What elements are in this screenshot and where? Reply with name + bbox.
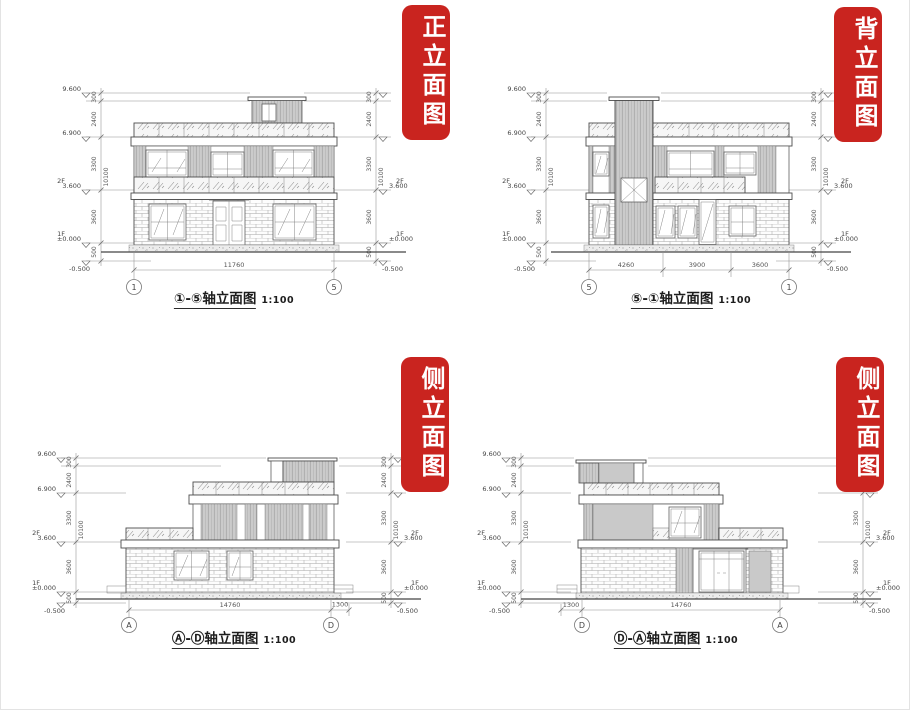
elev-label: ±0.000 xyxy=(876,584,900,592)
elev-label: ±0.000 xyxy=(404,584,428,592)
panel-front: 9.600 6.900 2F 3.600 1F ±0.000 -0.500 30… xyxy=(57,85,413,295)
vdim-total: 10100 xyxy=(865,520,872,539)
caption-back: ⑤-①轴立面图1:100 xyxy=(631,287,751,307)
elev-label: ±0.000 xyxy=(502,235,526,243)
vdim: 500 xyxy=(381,592,388,604)
hdim: 3600 xyxy=(752,261,769,269)
hdim: 14760 xyxy=(671,601,692,609)
back-left-dim-column: 9.600 6.900 2F 3.600 1F ±0.000 -0.500 30… xyxy=(502,85,596,273)
elev-label: -0.500 xyxy=(827,265,848,273)
elev-label: ±0.000 xyxy=(32,584,56,592)
back-building xyxy=(531,93,851,252)
vdim: 3600 xyxy=(536,209,543,224)
elev-label: 9.600 xyxy=(507,85,526,93)
vdim: 3300 xyxy=(811,156,818,171)
elev-label: 3.600 xyxy=(62,182,81,190)
vdim: 3600 xyxy=(366,209,373,224)
vdim: 3600 xyxy=(853,559,860,574)
caption-side-ad-scale: 1:100 xyxy=(263,635,296,646)
vdim: 500 xyxy=(91,246,98,258)
elev-label: ±0.000 xyxy=(834,235,858,243)
elev-label: ±0.000 xyxy=(477,584,501,592)
elev-label: -0.500 xyxy=(397,607,418,615)
hdim: 4260 xyxy=(618,261,635,269)
vdim: 2400 xyxy=(511,472,518,487)
vdim: 3600 xyxy=(91,209,98,224)
sidead-building xyxy=(61,458,421,599)
elev-label: ±0.000 xyxy=(57,235,81,243)
vdim-total: 10100 xyxy=(78,520,85,539)
vdim-total: 10100 xyxy=(523,520,530,539)
caption-side-ad: Ⓐ-Ⓓ轴立面图1:100 xyxy=(172,627,296,647)
vdim: 3300 xyxy=(366,156,373,171)
vdim: 3600 xyxy=(381,559,388,574)
vdim: 2400 xyxy=(811,111,818,126)
elev-label: -0.500 xyxy=(382,265,403,273)
vdim: 3300 xyxy=(853,510,860,525)
elev-label: 6.900 xyxy=(482,485,501,493)
hdim: 3900 xyxy=(689,261,706,269)
elev-label: ±0.000 xyxy=(389,235,413,243)
caption-side-ad-title: Ⓐ-Ⓓ轴立面图 xyxy=(172,631,259,649)
vdim-total: 10100 xyxy=(103,167,110,186)
banner-back-elevation: 背立面图 xyxy=(834,7,882,142)
axis-bubble: D xyxy=(328,621,334,630)
axis-bubble: 1 xyxy=(786,283,791,292)
vdim: 500 xyxy=(853,592,860,604)
elev-label: 6.900 xyxy=(62,129,81,137)
vdim: 3300 xyxy=(91,156,98,171)
vdim: 3300 xyxy=(511,510,518,525)
vdim: 3600 xyxy=(66,559,73,574)
panel-side-ad: 9.600 6.900 2F 3.600 1F ±0.000 -0.500 30… xyxy=(32,450,428,633)
elev-label: 6.900 xyxy=(507,129,526,137)
elev-label: 6.900 xyxy=(37,485,56,493)
axis-bubble: 5 xyxy=(331,283,336,292)
vdim: 2400 xyxy=(366,111,373,126)
elev-label: -0.500 xyxy=(69,265,90,273)
caption-front-title: ①-⑤轴立面图 xyxy=(174,291,256,309)
elev-label: 3.600 xyxy=(507,182,526,190)
axis-bubble: 1 xyxy=(131,283,136,292)
elev-label: -0.500 xyxy=(44,607,65,615)
panel-back: 9.600 6.900 2F 3.600 1F ±0.000 -0.500 30… xyxy=(502,85,858,295)
hdim: 11760 xyxy=(224,261,245,269)
front-building xyxy=(86,93,406,252)
elev-label: 3.600 xyxy=(876,534,895,542)
vdim-total: 10100 xyxy=(393,520,400,539)
banner-front-elevation: 正立面图 xyxy=(402,5,450,140)
axis-bubble: D xyxy=(579,621,585,630)
elevation-sheet: 9.600 6.900 2F 3.600 1F ±0.000 -0.500 30… xyxy=(0,0,910,710)
elev-label: -0.500 xyxy=(514,265,535,273)
vdim: 3600 xyxy=(811,209,818,224)
vdim: 500 xyxy=(536,246,543,258)
elev-label: 3.600 xyxy=(37,534,56,542)
elev-label: 3.600 xyxy=(482,534,501,542)
caption-side-da: Ⓓ-Ⓐ轴立面图1:100 xyxy=(614,627,738,647)
vdim: 2400 xyxy=(381,472,388,487)
vdim-total: 10100 xyxy=(548,167,555,186)
vdim: 500 xyxy=(511,592,518,604)
elev-label: -0.500 xyxy=(869,607,890,615)
caption-back-scale: 1:100 xyxy=(718,295,751,306)
vdim: 3300 xyxy=(66,510,73,525)
vdim: 3600 xyxy=(511,559,518,574)
vdim: 2400 xyxy=(91,111,98,126)
axis-bubble: A xyxy=(777,621,783,630)
sidead-left-dim-column: 9.600 6.900 2F 3.600 1F ±0.000 -0.500 30… xyxy=(32,450,126,615)
caption-front: ①-⑤轴立面图1:100 xyxy=(174,287,294,307)
vdim: 3300 xyxy=(536,156,543,171)
vdim: 2400 xyxy=(536,111,543,126)
hdim: 1300 xyxy=(563,601,580,609)
elev-label: -0.500 xyxy=(489,607,510,615)
vdim-total: 10100 xyxy=(378,167,385,186)
sideda-building xyxy=(506,458,881,599)
front-right-dim-column: 2F 3.600 1F ±0.000 -0.500 300 2400 3300 … xyxy=(331,88,413,273)
hdim: 14760 xyxy=(220,601,241,609)
axis-bubble: A xyxy=(126,621,132,630)
caption-side-da-title: Ⓓ-Ⓐ轴立面图 xyxy=(614,631,701,649)
vdim-total: 10100 xyxy=(823,167,830,186)
caption-side-da-scale: 1:100 xyxy=(705,635,738,646)
vdim: 500 xyxy=(66,592,73,604)
caption-back-title: ⑤-①轴立面图 xyxy=(631,291,713,309)
hdim: 1300 xyxy=(332,601,349,609)
drawing-canvas: 9.600 6.900 2F 3.600 1F ±0.000 -0.500 30… xyxy=(1,0,909,709)
elev-label: 9.600 xyxy=(37,450,56,458)
banner-side-elevation-2: 侧立面图 xyxy=(836,357,884,492)
vdim: 2400 xyxy=(66,472,73,487)
vdim: 3300 xyxy=(381,510,388,525)
elev-label: 3.600 xyxy=(389,182,408,190)
caption-front-scale: 1:100 xyxy=(261,295,294,306)
elev-label: 3.600 xyxy=(834,182,853,190)
banner-side-elevation-1: 侧立面图 xyxy=(401,357,449,492)
front-2f-windows xyxy=(146,150,314,177)
elev-label: 9.600 xyxy=(482,450,501,458)
axis-bubble: 5 xyxy=(586,283,591,292)
elev-label: 9.600 xyxy=(62,85,81,93)
elev-label: 3.600 xyxy=(404,534,423,542)
